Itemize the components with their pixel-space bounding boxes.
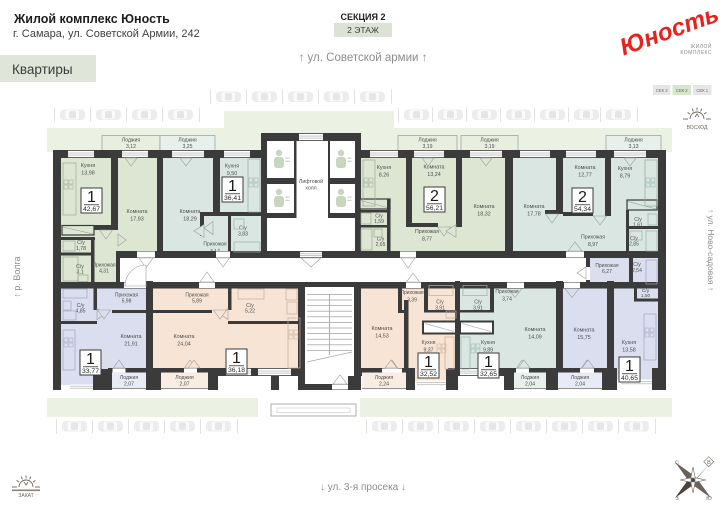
svg-text:2: 2: [578, 189, 587, 206]
svg-text:18,29: 18,29: [183, 217, 197, 223]
svg-text:Комната: Комната: [574, 165, 595, 171]
svg-text:1: 1: [424, 354, 433, 371]
svg-text:Кухня: Кухня: [225, 164, 240, 170]
svg-text:Комната: Комната: [573, 328, 594, 334]
svg-text:3,91: 3,91: [435, 305, 445, 311]
svg-text:Комната: Комната: [179, 209, 200, 215]
svg-text:32,52: 32,52: [420, 371, 437, 378]
svg-text:Лоджия: Лоджия: [624, 138, 643, 144]
svg-text:2,24: 2,24: [379, 382, 389, 388]
svg-text:Лоджия: Лоджия: [178, 138, 197, 144]
svg-text:2,07: 2,07: [124, 382, 134, 388]
svg-text:36,41: 36,41: [224, 195, 241, 202]
svg-text:↑ ул. Советской армии ↑: ↑ ул. Советской армии ↑: [299, 52, 428, 64]
svg-text:2,04: 2,04: [525, 382, 535, 388]
svg-text:24,04: 24,04: [177, 342, 191, 348]
svg-text:Кухня: Кухня: [422, 340, 436, 346]
svg-text:Ю: Ю: [706, 496, 712, 502]
svg-text:Комната: Комната: [523, 204, 544, 210]
svg-text:3,83: 3,83: [238, 232, 248, 238]
svg-text:КОМПЛЕКС: КОМПЛЕКС: [680, 50, 712, 56]
svg-text:Комната: Комната: [473, 204, 494, 210]
svg-text:Лоджия: Лоджия: [418, 138, 437, 144]
svg-text:5,22: 5,22: [245, 309, 255, 315]
svg-text:1: 1: [87, 189, 96, 206]
svg-text:4,31: 4,31: [99, 269, 109, 275]
svg-text:Прихожая: Прихожая: [415, 229, 439, 235]
svg-text:Лоджия: Лоджия: [375, 375, 394, 381]
svg-text:3,39: 3,39: [407, 298, 417, 304]
svg-text:Комната: Комната: [120, 334, 141, 340]
svg-text:Комната: Комната: [423, 165, 444, 171]
svg-text:ВОСХОД: ВОСХОД: [687, 125, 708, 131]
svg-text:8,77: 8,77: [422, 237, 432, 243]
svg-text:42,67: 42,67: [83, 206, 100, 213]
svg-text:21,91: 21,91: [124, 342, 138, 348]
svg-text:1: 1: [625, 358, 634, 375]
svg-text:Лоджия: Лоджия: [480, 138, 499, 144]
svg-text:32,65: 32,65: [480, 371, 497, 378]
svg-text:3,19: 3,19: [422, 144, 432, 150]
svg-text:9,50: 9,50: [227, 171, 238, 177]
svg-text:2,04: 2,04: [575, 382, 585, 388]
svg-text:8,97: 8,97: [588, 242, 598, 248]
svg-text:13,58: 13,58: [622, 348, 636, 354]
svg-text:17,93: 17,93: [130, 217, 144, 223]
svg-text:6,27: 6,27: [602, 269, 612, 275]
svg-text:8,79: 8,79: [620, 174, 631, 180]
svg-text:↓ ул. 3-я просека ↓: ↓ ул. 3-я просека ↓: [320, 482, 406, 493]
svg-text:Комната: Комната: [126, 209, 147, 215]
svg-text:Комната: Комната: [524, 327, 545, 333]
svg-text:1,78: 1,78: [76, 246, 86, 252]
svg-text:3,13: 3,13: [628, 144, 638, 150]
svg-text:3,91: 3,91: [473, 305, 483, 311]
svg-text:36,18: 36,18: [228, 367, 245, 374]
svg-text:Лоджия: Лоджия: [122, 138, 141, 144]
svg-text:Кухня: Кухня: [622, 340, 637, 346]
svg-text:Кухня: Кухня: [481, 340, 495, 346]
svg-text:3,1: 3,1: [76, 270, 83, 276]
svg-text:↑ ул. Ново-садовая ↑: ↑ ул. Ново-садовая ↑: [706, 209, 716, 291]
svg-text:Комната: Комната: [173, 334, 194, 340]
svg-text:Прихожая: Прихожая: [400, 290, 423, 296]
svg-text:1: 1: [86, 351, 95, 368]
svg-text:54,34: 54,34: [574, 206, 591, 213]
svg-text:В: В: [707, 460, 711, 466]
svg-text:3,19: 3,19: [484, 144, 494, 150]
svg-text:ЖИЛОЙ: ЖИЛОЙ: [691, 42, 712, 50]
svg-text:Лоджия: Лоджия: [571, 375, 590, 381]
svg-text:Прихожая: Прихожая: [581, 235, 605, 241]
svg-text:56,21: 56,21: [426, 205, 443, 212]
svg-text:Комната: Комната: [371, 326, 392, 332]
svg-text:1,61: 1,61: [633, 223, 643, 229]
svg-text:5,89: 5,89: [192, 298, 202, 304]
svg-text:Кухня: Кухня: [377, 165, 392, 171]
svg-text:СЕКЦИЯ 2: СЕКЦИЯ 2: [340, 12, 385, 22]
svg-text:14,53: 14,53: [375, 334, 389, 340]
svg-text:2 ЭТАЖ: 2 ЭТАЖ: [347, 25, 379, 35]
svg-text:2: 2: [430, 188, 439, 205]
svg-text:1,50: 1,50: [641, 293, 651, 299]
svg-text:1,59: 1,59: [374, 219, 384, 225]
svg-text:3,25: 3,25: [182, 144, 192, 150]
svg-text:13,98: 13,98: [81, 171, 95, 177]
svg-text:С: С: [675, 461, 679, 467]
svg-text:Кухня: Кухня: [81, 163, 96, 169]
svg-text:↑ р. Волга: ↑ р. Волга: [12, 256, 22, 297]
svg-text:2,85: 2,85: [629, 242, 639, 248]
svg-text:5,98: 5,98: [122, 298, 132, 304]
svg-text:г. Самара, ул. Советской Армии: г. Самара, ул. Советской Армии, 242: [13, 28, 200, 40]
svg-text:Жилой комплекс Юность: Жилой комплекс Юность: [13, 12, 170, 26]
svg-text:15,75: 15,75: [577, 335, 591, 341]
svg-text:40,65: 40,65: [621, 375, 638, 382]
svg-text:8,26: 8,26: [379, 173, 390, 179]
svg-text:1: 1: [484, 354, 493, 371]
svg-text:3,12: 3,12: [126, 144, 136, 150]
svg-text:17,78: 17,78: [527, 212, 541, 218]
svg-text:холл: холл: [305, 186, 316, 192]
svg-text:2,54: 2,54: [632, 268, 642, 274]
svg-text:12,77: 12,77: [578, 173, 592, 179]
svg-text:СЕК 1: СЕК 1: [696, 88, 708, 93]
svg-text:4,85: 4,85: [75, 309, 85, 315]
svg-text:2,65: 2,65: [376, 242, 386, 248]
svg-text:ЗАКАТ: ЗАКАТ: [18, 493, 33, 499]
svg-text:Лоджия: Лоджия: [175, 375, 194, 381]
svg-text:Лоджия: Лоджия: [120, 375, 139, 381]
svg-text:Прихожая: Прихожая: [495, 289, 518, 295]
svg-text:Лоджия: Лоджия: [521, 375, 540, 381]
svg-text:13,24: 13,24: [427, 172, 441, 178]
svg-text:Квартиры: Квартиры: [12, 62, 73, 77]
svg-text:18,32: 18,32: [477, 212, 491, 218]
svg-text:1: 1: [232, 350, 241, 367]
svg-text:СЕК 3: СЕК 3: [656, 88, 668, 93]
svg-text:33,77: 33,77: [82, 368, 99, 375]
svg-text:14,09: 14,09: [528, 335, 542, 341]
svg-text:1: 1: [228, 178, 237, 195]
svg-text:СЕК 2: СЕК 2: [676, 88, 688, 93]
svg-text:3,74: 3,74: [502, 297, 512, 303]
svg-text:Кухня: Кухня: [618, 166, 633, 172]
svg-text:Прихожая: Прихожая: [203, 242, 226, 248]
svg-text:Лифтовой: Лифтовой: [299, 178, 323, 185]
svg-text:2,07: 2,07: [179, 382, 189, 388]
